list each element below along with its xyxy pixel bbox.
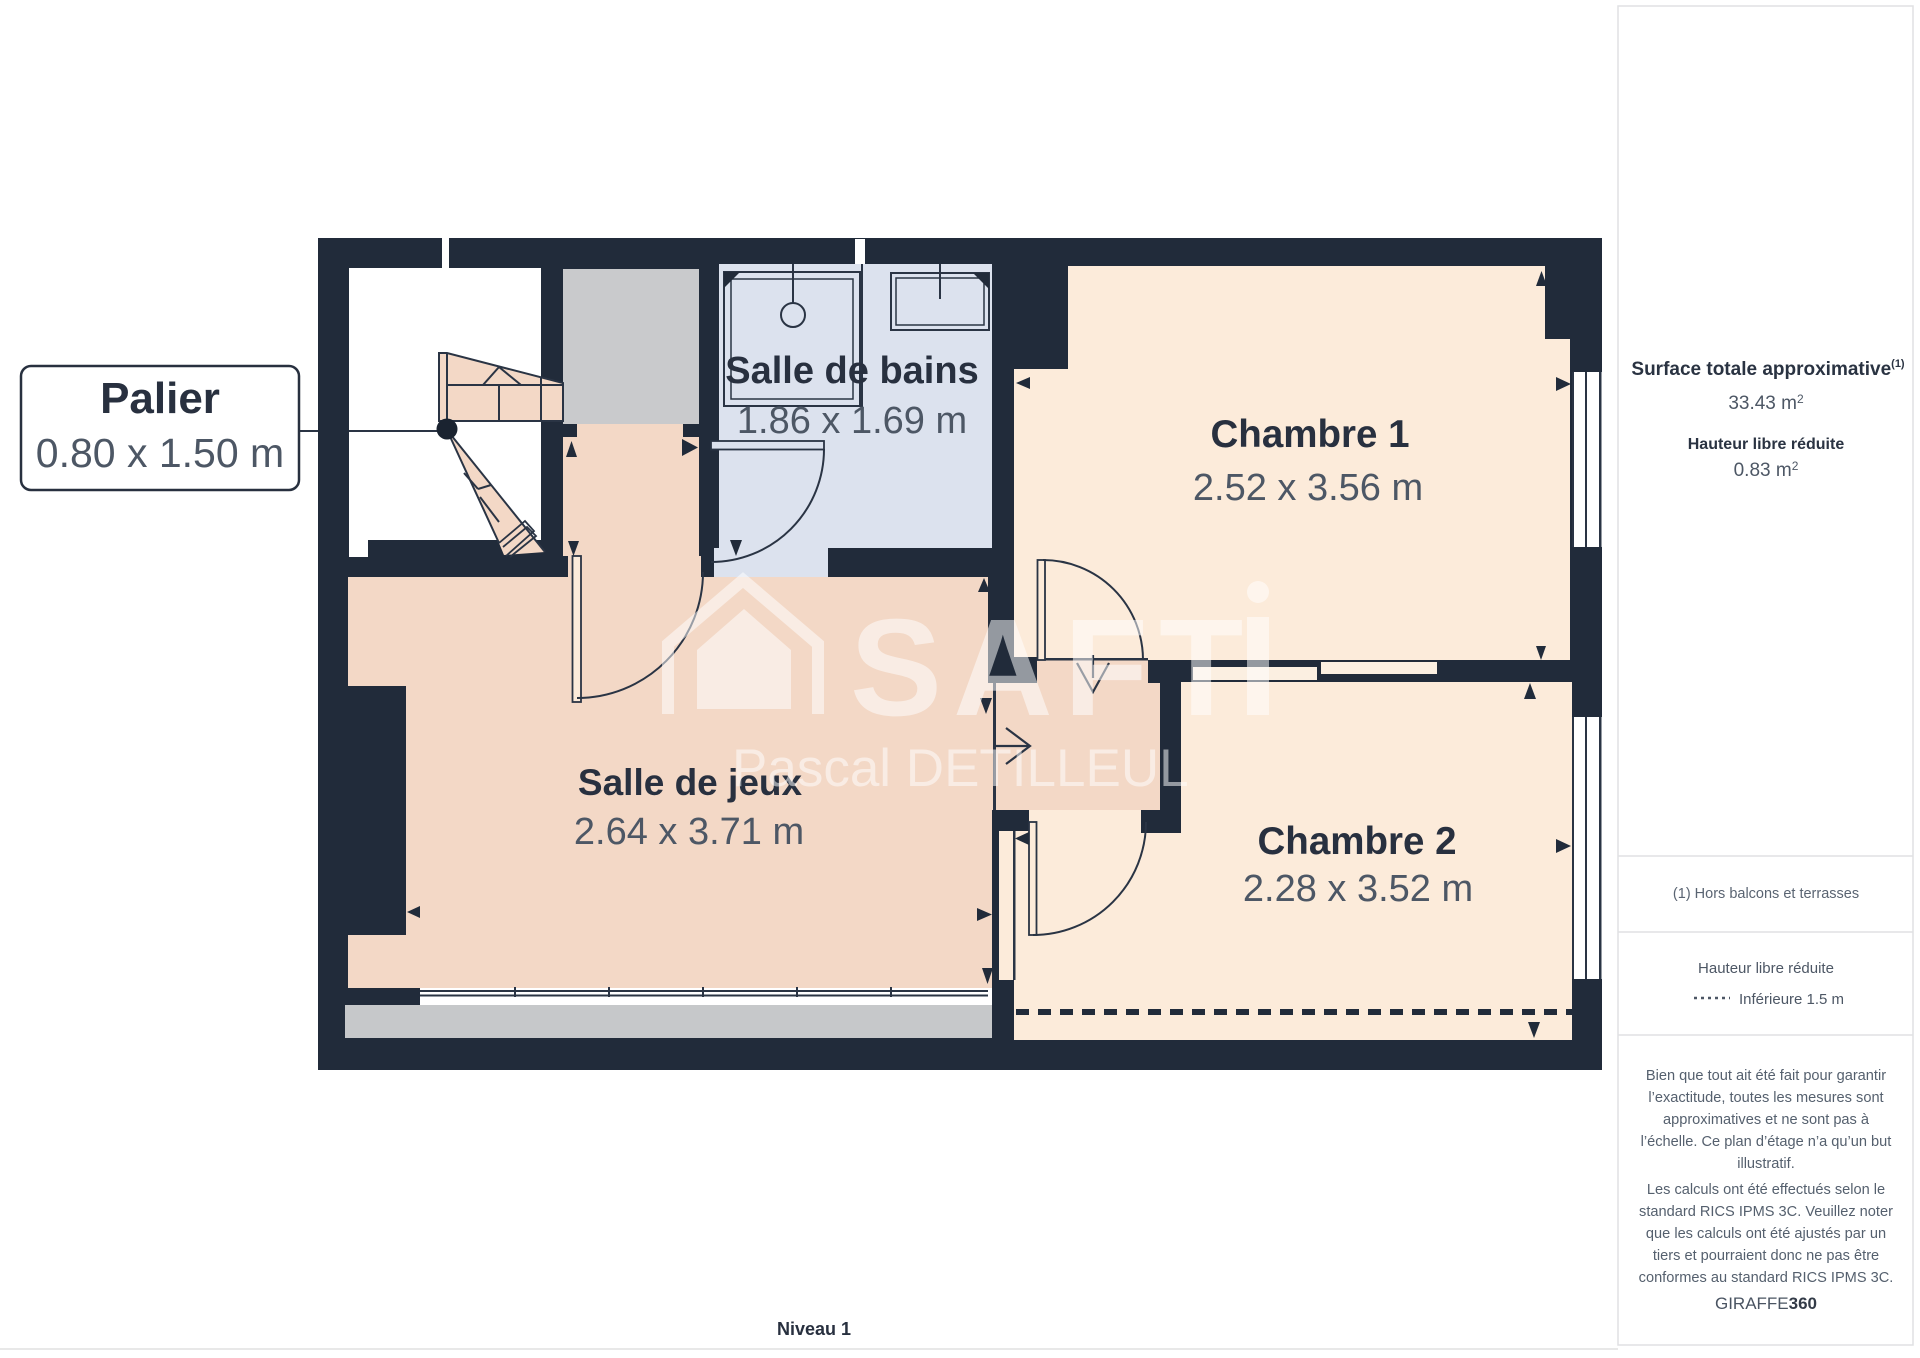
svg-text:2.28 x 3.52 m: 2.28 x 3.52 m — [1243, 868, 1473, 910]
svg-text:standard RICS IPMS 3C. Veuille: standard RICS IPMS 3C. Veuillez noter — [1639, 1204, 1893, 1220]
svg-text:2.64 x 3.71 m: 2.64 x 3.71 m — [574, 811, 804, 853]
svg-text:SAFT: SAFT — [850, 591, 1254, 745]
svg-text:1.86 x 1.69 m: 1.86 x 1.69 m — [737, 400, 967, 442]
svg-text:2.52 x 3.56 m: 2.52 x 3.56 m — [1193, 467, 1423, 509]
svg-text:Palier: Palier — [100, 374, 220, 423]
svg-text:(1) Hors balcons et terrasses: (1) Hors balcons et terrasses — [1673, 886, 1859, 902]
svg-text:Niveau 1: Niveau 1 — [777, 1319, 851, 1339]
svg-text:Chambre 2: Chambre 2 — [1258, 820, 1457, 863]
svg-text:Surface totale approximative(1: Surface totale approximative(1) — [1631, 358, 1905, 380]
svg-text:0.80 x 1.50 m: 0.80 x 1.50 m — [36, 430, 284, 476]
svg-text:33.43 m2: 33.43 m2 — [1728, 392, 1804, 414]
svg-text:0.83 m2: 0.83 m2 — [1734, 459, 1799, 481]
svg-text:Bien que tout ait été fait pou: Bien que tout ait été fait pour garantir — [1646, 1068, 1886, 1084]
svg-text:Les calculs ont été effectués: Les calculs ont été effectués selon le — [1647, 1182, 1885, 1198]
svg-text:conformes au standard RICS IPM: conformes au standard RICS IPMS 3C. — [1639, 1270, 1894, 1286]
svg-text:GIRAFFE360: GIRAFFE360 — [1715, 1294, 1817, 1313]
svg-text:illustratif.: illustratif. — [1737, 1156, 1795, 1172]
svg-text:que les calculs ont été ajusté: que les calculs ont été ajustés par un — [1646, 1226, 1886, 1242]
svg-text:Chambre 1: Chambre 1 — [1211, 413, 1410, 456]
svg-text:tiers et pourraient donc ne pa: tiers et pourraient donc ne pas être — [1653, 1248, 1879, 1264]
svg-text:Inférieure 1.5 m: Inférieure 1.5 m — [1739, 991, 1844, 1008]
svg-text:Hauteur libre réduite: Hauteur libre réduite — [1688, 436, 1845, 453]
svg-text:approximatives et ne sont pas: approximatives et ne sont pas à — [1663, 1112, 1870, 1128]
svg-text:Hauteur libre réduite: Hauteur libre réduite — [1698, 960, 1834, 977]
svg-text:l’échelle. Ce plan d’étage n’a: l’échelle. Ce plan d’étage n’a qu’un but — [1641, 1134, 1892, 1150]
svg-text:Salle de bains: Salle de bains — [725, 350, 978, 392]
svg-text:l’exactitude, toutes les mesur: l’exactitude, toutes les mesures sont — [1648, 1090, 1883, 1106]
svg-text:Pascal DETILLEUL: Pascal DETILLEUL — [732, 739, 1189, 798]
